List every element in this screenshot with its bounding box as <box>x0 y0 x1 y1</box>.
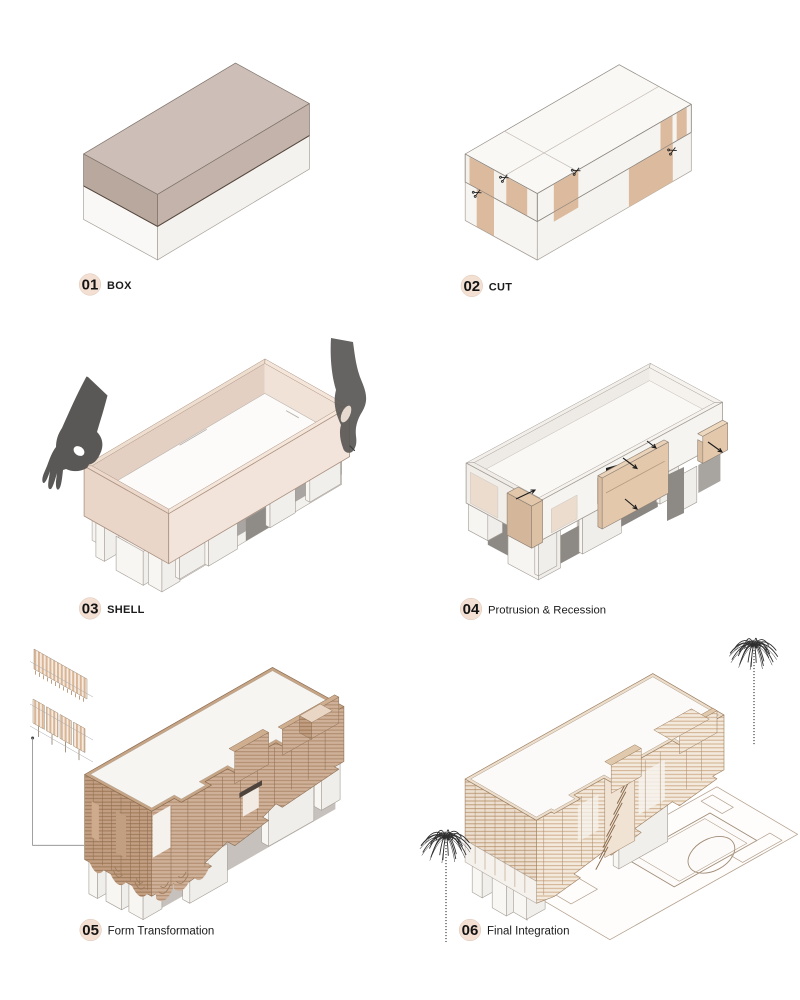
svg-text:03: 03 <box>82 600 99 617</box>
svg-text:Form Transformation: Form Transformation <box>108 926 215 938</box>
svg-text:Final Integration: Final Integration <box>487 926 569 938</box>
svg-text:06: 06 <box>462 922 479 939</box>
svg-text:BOX: BOX <box>107 280 132 292</box>
svg-text:04: 04 <box>463 601 480 618</box>
svg-text:05: 05 <box>82 922 99 939</box>
svg-text:CUT: CUT <box>489 281 513 293</box>
svg-text:02: 02 <box>463 278 480 295</box>
svg-text:SHELL: SHELL <box>107 604 145 616</box>
svg-text:01: 01 <box>82 277 99 294</box>
svg-text:Protrusion & Recession: Protrusion & Recession <box>488 605 606 617</box>
